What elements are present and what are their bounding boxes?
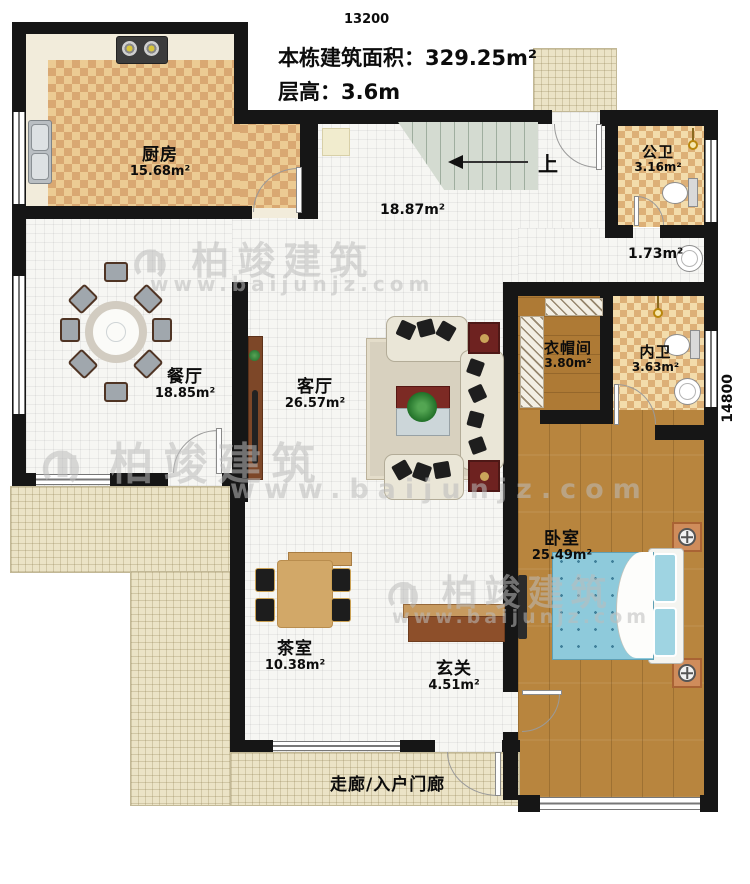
room-label-ensuite: 内卫 3.63m² (608, 344, 703, 374)
stove-burner-icon (122, 41, 137, 56)
dimension-right: 14800 (720, 374, 736, 423)
terrace-top (533, 48, 617, 112)
sofa-pillow (433, 461, 452, 480)
kitchen-floor (48, 60, 240, 208)
building-area-note: 本栋建筑面积：329.25m² (278, 42, 537, 72)
kitchen-sink-basin (31, 124, 49, 151)
shoe-cabinet (408, 616, 505, 642)
plant-icon (249, 350, 260, 361)
room-label-foyer: 玄关 4.51m² (404, 660, 504, 694)
plant-icon (407, 392, 437, 422)
room-label-kitchen: 厨房 15.68m² (105, 146, 215, 180)
window (13, 276, 25, 414)
wall (12, 206, 252, 219)
dimension-top: 13200 (344, 12, 389, 27)
wall (605, 112, 618, 238)
tea-chair (255, 598, 275, 622)
tv-icon (518, 575, 527, 639)
room-label-living: 客厅 26.57m² (260, 378, 370, 412)
dining-chair (104, 262, 128, 282)
wall (540, 410, 613, 424)
sink-icon (674, 378, 701, 405)
terrace-left (10, 486, 240, 573)
wall (12, 22, 248, 34)
room-label-dining: 餐厅 18.85m² (130, 368, 240, 402)
kitchen-sink-basin (31, 153, 49, 180)
wall (12, 22, 26, 484)
tea-chair (331, 568, 351, 592)
tv-icon (252, 390, 258, 464)
wall (503, 732, 518, 800)
wall (660, 225, 704, 238)
wall (503, 282, 704, 296)
hall-area-label: 18.87m² (380, 202, 445, 218)
end-table-detail (480, 334, 489, 343)
wall (655, 425, 704, 440)
stair-arrow-icon (448, 155, 463, 169)
wall (503, 292, 518, 692)
toilet-icon (662, 182, 688, 204)
room-label-bedroom: 卧室 25.49m² (512, 530, 612, 564)
tea-chair (255, 568, 275, 592)
tea-table (277, 560, 333, 628)
wall (518, 795, 540, 812)
window (273, 741, 400, 751)
stairs-up-label: 上 (538, 148, 558, 177)
room-label-tea: 茶室 10.38m² (240, 640, 350, 674)
lamp-icon (678, 664, 696, 682)
wall (12, 473, 36, 486)
entry-door (495, 752, 501, 796)
ensuite-door (614, 384, 619, 425)
terrace-strip (130, 571, 240, 806)
floor-plan: 上 (0, 0, 750, 884)
wall (230, 486, 245, 752)
vestibule-area-label: 1.73m² (628, 246, 683, 262)
stove-burner-icon (144, 41, 159, 56)
room-label-cloakroom: 衣帽间 3.80m² (518, 340, 618, 370)
wall (400, 740, 435, 752)
wall (300, 124, 318, 219)
ceiling-light-icon (653, 308, 663, 318)
clothes-rack (545, 298, 603, 316)
wall (234, 110, 552, 124)
window (540, 797, 700, 810)
dining-chair (60, 318, 80, 342)
room-label-public-bath: 公卫 3.16m² (608, 144, 708, 174)
wall (230, 740, 273, 752)
patio-door (596, 124, 602, 170)
window (705, 331, 717, 407)
tea-chair (331, 598, 351, 622)
window (36, 474, 110, 485)
public-bath-door (634, 196, 639, 226)
window (13, 112, 25, 204)
corridor-label: 走廊/入户门廊 (330, 770, 445, 795)
kitchen-door (296, 167, 302, 213)
lamp-icon (678, 528, 696, 546)
toilet-tank-icon (688, 178, 698, 207)
end-table-detail (480, 472, 489, 481)
dining-chair (152, 318, 172, 342)
hall-pad (322, 128, 350, 156)
wall (222, 473, 248, 486)
dining-table-center (106, 322, 126, 342)
bed-pillow (653, 553, 677, 603)
dining-chair (104, 382, 128, 402)
wall (234, 34, 248, 112)
floor-height-note: 层高：3.6m (278, 76, 400, 106)
wall (700, 795, 718, 812)
wall (110, 473, 168, 486)
terrace-door (216, 428, 222, 474)
title-block: 一层平面图 1:100 本层建筑面积：153.65m² 占地面积：153.65m… (0, 820, 750, 884)
stair-direction-line (462, 161, 528, 163)
bed-pillow (653, 607, 677, 657)
